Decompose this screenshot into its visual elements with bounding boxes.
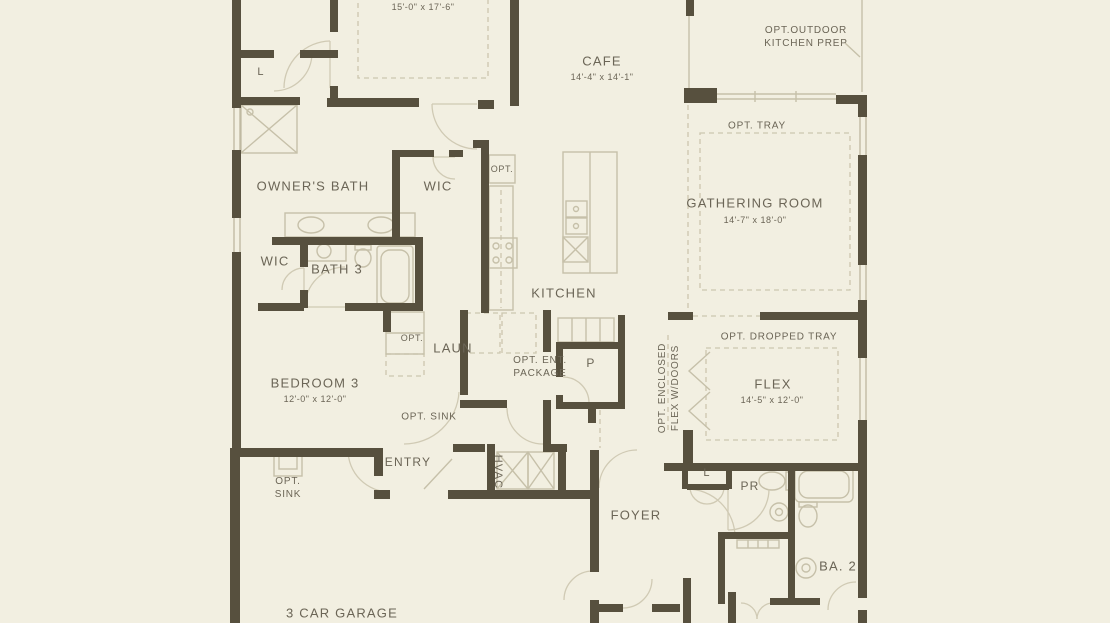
room-label-foyer: FOYER [611,508,662,525]
room-label-flex: FLEX [754,377,791,394]
room-label-garage: 3 CAR GARAGE [286,606,398,623]
room-label-bath-2: BA. 2 [819,559,857,576]
opt-label-bedroom3-closet: OPT. [401,333,423,345]
opt-label-tray: OPT. TRAY [728,120,786,133]
room-label-hvac: HVAC [491,455,505,490]
room-label-kitchen: KITCHEN [531,286,596,303]
room-label-cafe: CAFE [582,54,621,71]
opt-label-fridge: OPT. [491,164,513,176]
room-label-linen-2: L [703,466,710,480]
opt-label-dropped-tray: OPT. DROPPED TRAY [721,331,838,344]
opt-label-ent-package: OPT. ENT. PACKAGE [513,354,567,380]
room-label-bath-3: BATH 3 [311,262,363,279]
room-label-wic-2: WIC [261,254,290,271]
room-label-entry: ENTRY [385,455,431,471]
room-dims-bedroom-3: 12'-0" x 12'-0" [284,394,347,406]
room-label-laundry: LAUN [433,341,472,358]
room-dims-cafe: 14'-4" x 14'-1" [571,72,634,84]
room-label-gathering-room: GATHERING ROOM [686,196,823,213]
room-dims-owner-suite: 15'-0" x 17'-6" [392,2,455,14]
floorplan-canvas [0,0,1110,623]
room-label-bedroom-3: BEDROOM 3 [271,376,360,393]
room-label-linen-1: L [257,65,264,79]
room-dims-gathering-room: 14'-7" x 18'-0" [724,215,787,227]
opt-label-sink-garage: OPT. SINK [275,475,302,501]
room-label-pantry: P [586,356,595,372]
opt-label-outdoor-kitchen: OPT.OUTDOOR KITCHEN PREP [764,24,848,50]
floor-plan: 15'-0" x 17'-6" L CAFE 14'-4" x 14'-1" O… [0,0,1110,623]
room-label-powder-room: PR [740,479,759,495]
room-label-owners-wic: WIC [424,179,453,196]
room-label-owners-bath: OWNER'S BATH [257,179,370,196]
room-dims-flex: 14'-5" x 12'-0" [741,395,804,407]
opt-label-enclosed-flex: OPT. ENCLOSED FLEX W/DOORS [656,343,682,433]
opt-label-sink-hall: OPT. SINK [401,411,457,424]
